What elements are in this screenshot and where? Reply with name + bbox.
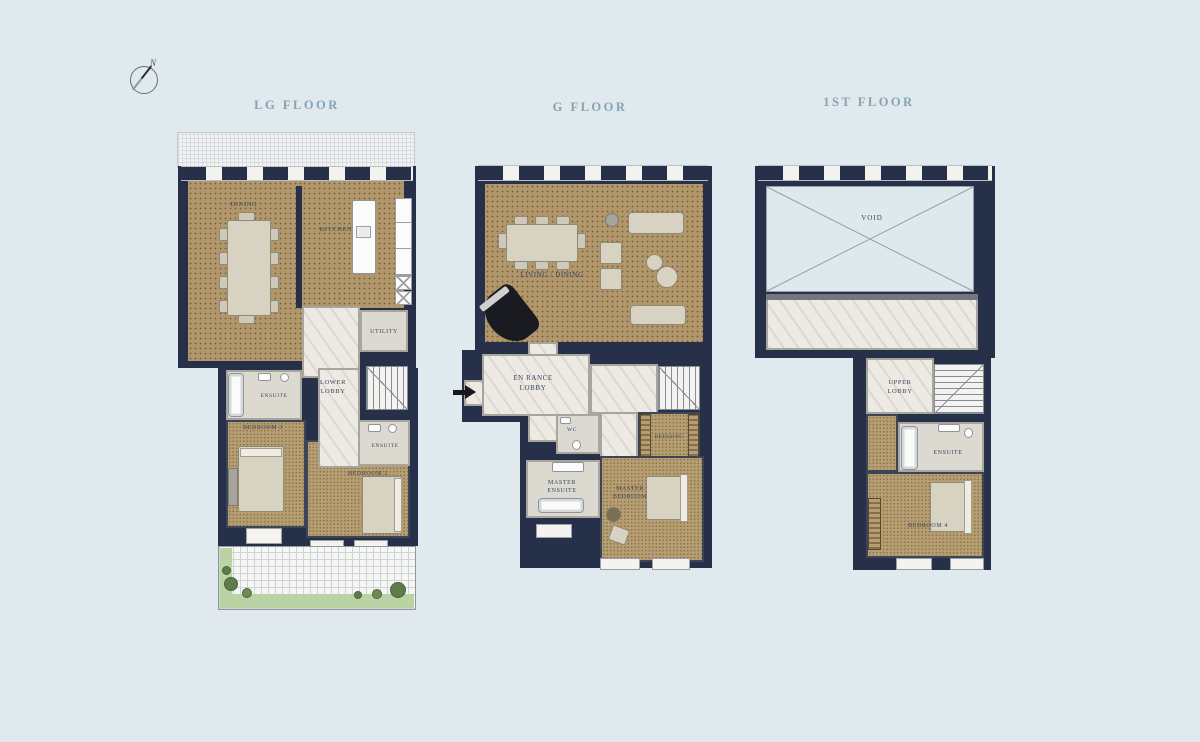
void-cross-icon [766,186,974,292]
first-void-label: VOID [840,214,904,224]
first-bed4-pillows [964,480,972,534]
first-ensuite-label: ENSUITE [921,449,975,457]
first-floor-plan: VOID UPPER LOBBY ENSUITE BEDROOM 4 [0,0,1200,742]
first-corridor [866,414,898,472]
first-gallery [766,294,978,350]
floorplan-sheet: N LG FLOOR G FLOOR 1ST FLOOR [0,0,1200,742]
first-upper-lobby-label: UPPER LOBBY [880,378,920,396]
first-stairs [934,364,984,414]
first-bay-ledge-2 [950,558,984,570]
first-gallery-edge [766,294,978,300]
first-bedroom4-label: BEDROOM 4 [892,522,964,530]
first-bathtub [901,426,918,470]
first-bedroom4-wardrobe [868,498,881,550]
first-basin [938,424,960,432]
first-bay-ledge-1 [896,558,932,570]
first-toilet [964,428,973,438]
first-facade-bays [758,165,992,181]
